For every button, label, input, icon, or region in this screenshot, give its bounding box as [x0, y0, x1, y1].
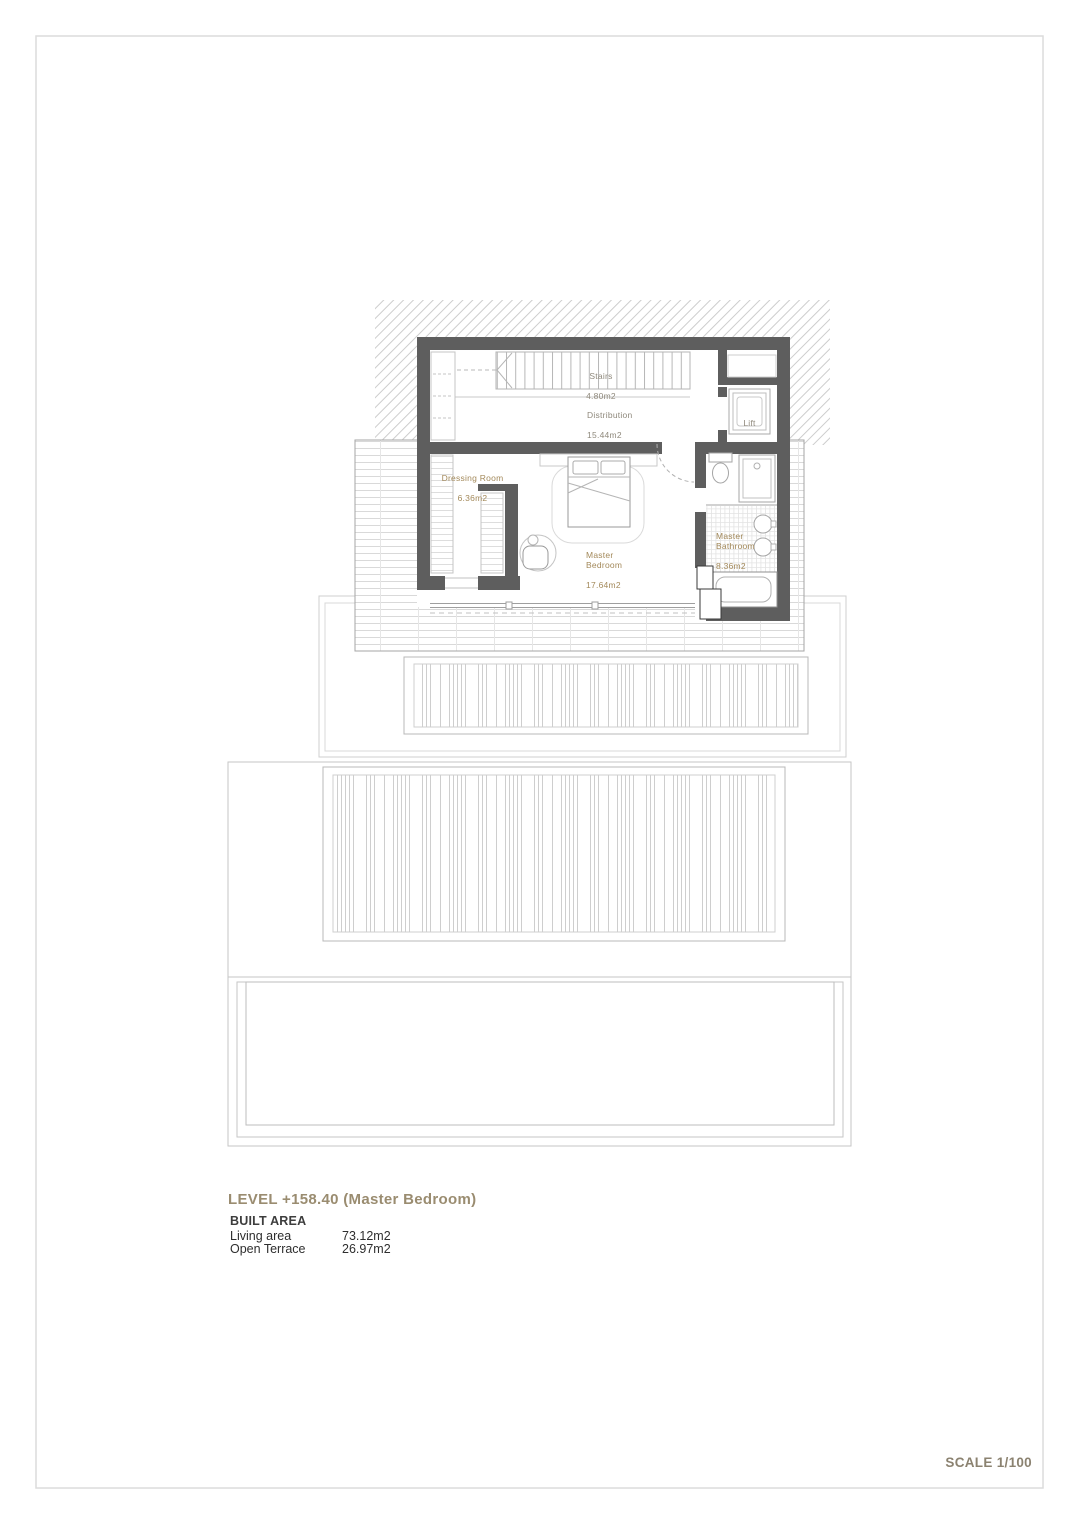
room-label-lift: Lift [727, 408, 772, 428]
room-name: Master Bedroom [586, 550, 622, 570]
built-area-heading: BUILT AREA [230, 1214, 306, 1228]
area-label: Open Terrace [230, 1242, 342, 1256]
room-label-master-bedroom: Master Bedroom 17.64m2 [586, 540, 638, 590]
area-row-living: Living area 73.12m2 [230, 1229, 391, 1243]
vanity-table [520, 535, 556, 571]
room-label-stairs: Stairs 4.80m2 [566, 361, 636, 401]
bed [568, 457, 630, 527]
room-label-distribution: Distribution 15.44m2 [587, 400, 677, 440]
room-area: 15.44m2 [587, 430, 622, 440]
scale-label: SCALE 1/100 [900, 1455, 1032, 1470]
shower [739, 455, 775, 502]
table-lamp [528, 535, 538, 545]
chair [523, 546, 548, 569]
area-value: 73.12m2 [342, 1229, 391, 1243]
room-name: Distribution [587, 410, 633, 420]
room-name: Lift [743, 418, 755, 428]
room-name: Master Bathroom [716, 531, 755, 551]
room-name: Stairs [589, 371, 612, 381]
room-name: Dressing Room [442, 473, 504, 483]
area-row-terrace: Open Terrace 26.97m2 [230, 1242, 391, 1256]
pergola-slats-lower [323, 767, 785, 941]
pergola-slats-upper [404, 657, 808, 734]
room-label-dressing-room: Dressing Room 6.36m2 [425, 463, 520, 503]
room-area: 6.36m2 [458, 493, 488, 503]
wardrobe-island [481, 493, 503, 573]
area-value: 26.97m2 [342, 1242, 391, 1256]
room-area: 17.64m2 [586, 580, 621, 590]
level-title: LEVEL +158.40 (Master Bedroom) [228, 1191, 476, 1208]
area-label: Living area [230, 1229, 342, 1243]
room-area: 8.36m2 [716, 561, 746, 571]
distribution-closet [431, 352, 455, 440]
room-label-master-bathroom: Master Bathroom 8.36m2 [716, 521, 764, 571]
drawing-sheet-page: Stairs 4.80m2 Distribution 15.44m2 Lift … [0, 0, 1080, 1527]
lift-closet [728, 355, 776, 377]
floor-plan-drawing [0, 0, 1080, 1527]
